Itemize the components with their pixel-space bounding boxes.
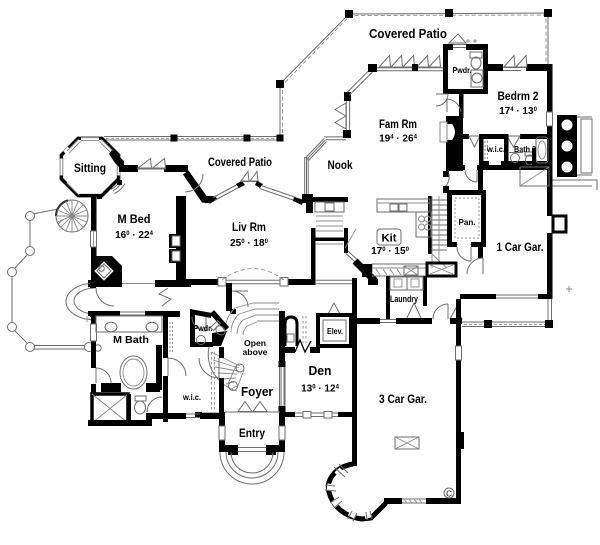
svg-text:170 · 150: 170 · 150 bbox=[371, 246, 409, 257]
svg-text:Elev.: Elev. bbox=[327, 327, 343, 336]
svg-text:194 · 264: 194 · 264 bbox=[379, 134, 417, 145]
svg-text:Kit: Kit bbox=[382, 233, 397, 245]
svg-text:174 · 130: 174 · 130 bbox=[499, 106, 537, 117]
svg-text:w.i.c.: w.i.c. bbox=[486, 145, 505, 154]
svg-text:Foyer: Foyer bbox=[241, 384, 273, 399]
svg-text:Pan.: Pan. bbox=[459, 217, 476, 227]
svg-text:Bedrm 2: Bedrm 2 bbox=[498, 91, 539, 103]
svg-text:Den: Den bbox=[309, 364, 332, 378]
svg-text:Sitting: Sitting bbox=[74, 161, 106, 175]
svg-text:3 Car Gar.: 3 Car Gar. bbox=[379, 392, 427, 406]
svg-text:250 · 180: 250 · 180 bbox=[230, 238, 268, 249]
svg-text:Covered Patio: Covered Patio bbox=[369, 27, 447, 41]
svg-text:above: above bbox=[243, 347, 268, 357]
svg-text:Laundry: Laundry bbox=[390, 294, 419, 305]
svg-text:M Bed: M Bed bbox=[118, 212, 151, 226]
svg-text:w.i.c.: w.i.c. bbox=[182, 392, 201, 402]
svg-text:Entry: Entry bbox=[239, 426, 265, 440]
svg-text:1 Car Gar.: 1 Car Gar. bbox=[497, 240, 544, 254]
svg-text:130 · 124: 130 · 124 bbox=[301, 384, 339, 395]
svg-text:Fam Rm: Fam Rm bbox=[379, 119, 417, 131]
svg-text:M Bath: M Bath bbox=[113, 334, 149, 346]
svg-text:Liv Rm: Liv Rm bbox=[232, 220, 266, 234]
svg-text:Bath 2: Bath 2 bbox=[514, 144, 536, 154]
svg-text:Covered Patio: Covered Patio bbox=[208, 157, 272, 169]
svg-text:C: C bbox=[446, 490, 452, 499]
svg-text:Nook: Nook bbox=[328, 158, 353, 172]
svg-text:Pwdr.: Pwdr. bbox=[194, 323, 213, 333]
svg-text:160 · 224: 160 · 224 bbox=[115, 230, 153, 241]
svg-text:Pwdr.: Pwdr. bbox=[453, 65, 472, 75]
